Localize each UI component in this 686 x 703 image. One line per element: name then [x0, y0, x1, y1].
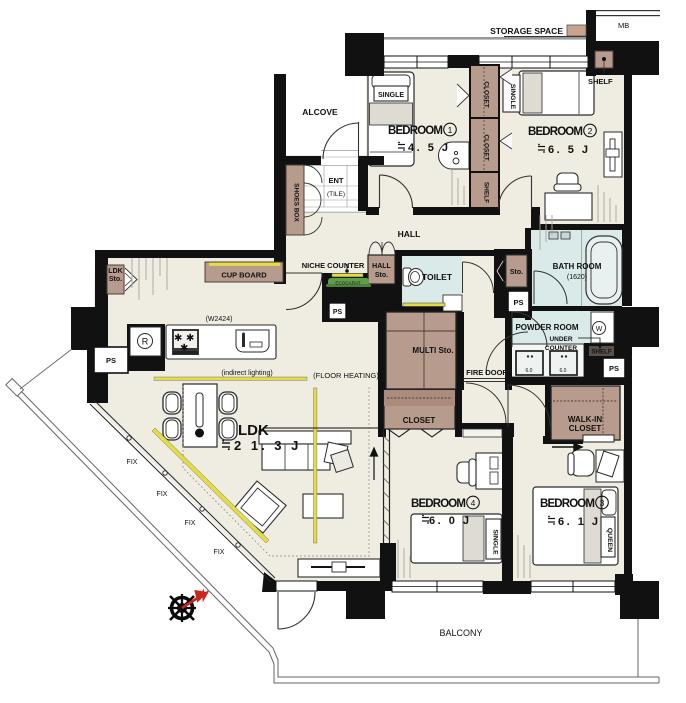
svg-text:SHOES BOX: SHOES BOX	[293, 183, 300, 222]
svg-text:CLOSET: CLOSET	[483, 134, 490, 160]
svg-text:BATH ROOM: BATH ROOM	[553, 262, 602, 271]
svg-text:(TILE): (TILE)	[327, 191, 345, 198]
svg-text:CLOSET: CLOSET	[403, 416, 436, 425]
svg-text:MULTI Sto.: MULTI Sto.	[412, 346, 453, 355]
svg-text:6.0: 6.0	[526, 368, 533, 374]
svg-text:CLOSET: CLOSET	[483, 81, 490, 107]
svg-text:FIX: FIX	[127, 459, 138, 466]
svg-text:POWDER ROOM: POWDER ROOM	[515, 323, 578, 332]
svg-text:FIX: FIX	[157, 491, 168, 498]
svg-text:R: R	[142, 337, 149, 347]
svg-text:Sto.: Sto.	[109, 276, 122, 283]
svg-text:MB: MB	[618, 21, 629, 30]
svg-text:SHELF: SHELF	[591, 349, 612, 356]
svg-text:SINGLE: SINGLE	[509, 84, 516, 110]
svg-text:HALL: HALL	[398, 229, 421, 239]
svg-text:(indirect lighting): (indirect lighting)	[221, 370, 272, 377]
svg-text:(W2424): (W2424)	[206, 316, 233, 323]
svg-text:W: W	[596, 326, 603, 333]
svg-text:6. 5 J: 6. 5 J	[548, 144, 591, 156]
svg-text:NICHE COUNTER: NICHE COUNTER	[302, 261, 365, 270]
svg-text:HALL: HALL	[372, 263, 391, 270]
svg-text:FIX: FIX	[214, 549, 225, 556]
svg-text:ECOCARAT: ECOCARAT	[335, 281, 360, 286]
svg-text:FIRE DOOR: FIRE DOOR	[466, 368, 508, 377]
svg-text:SHELF: SHELF	[588, 77, 613, 86]
svg-text:PS: PS	[609, 364, 619, 373]
svg-text:BEDROOM: BEDROOM	[540, 498, 595, 510]
svg-text:CUP BOARD: CUP BOARD	[221, 271, 267, 280]
svg-text:4: 4	[471, 498, 476, 508]
svg-text:COUNTER: COUNTER	[545, 345, 577, 352]
svg-text:BEDROOM: BEDROOM	[411, 498, 466, 510]
svg-text:6.0: 6.0	[560, 368, 567, 374]
svg-text:PS: PS	[106, 356, 116, 365]
svg-text:(1620): (1620)	[567, 274, 587, 281]
svg-text:6. 1 J: 6. 1 J	[558, 516, 601, 528]
svg-text:BEDROOM: BEDROOM	[388, 125, 443, 137]
svg-text:WALK-IN: WALK-IN	[568, 415, 602, 424]
svg-text:PS: PS	[333, 309, 343, 316]
svg-text:ALCOVE: ALCOVE	[302, 107, 338, 117]
svg-text:LDK: LDK	[108, 268, 122, 275]
svg-text:(FLOOR HEATING): (FLOOR HEATING)	[313, 371, 379, 380]
svg-text:STORAGE SPACE: STORAGE SPACE	[490, 26, 563, 36]
svg-text:FIX: FIX	[185, 520, 196, 527]
svg-text:6. 0 J: 6. 0 J	[429, 515, 472, 527]
svg-text:CLOSET: CLOSET	[569, 424, 602, 433]
svg-text:3: 3	[600, 498, 605, 508]
svg-text:1: 1	[448, 125, 453, 135]
svg-text:QUEEN: QUEEN	[606, 528, 613, 552]
svg-text:UNDER: UNDER	[549, 336, 572, 343]
svg-text:4. 5 J: 4. 5 J	[408, 142, 451, 154]
svg-text:2 1. 3 J: 2 1. 3 J	[234, 438, 301, 453]
svg-text:LDK: LDK	[238, 422, 269, 439]
svg-text:BALCONY: BALCONY	[439, 628, 482, 638]
svg-text:PS: PS	[513, 298, 523, 307]
svg-text:BEDROOM: BEDROOM	[528, 126, 583, 138]
svg-text:2: 2	[588, 126, 593, 136]
svg-text:Sto.: Sto.	[375, 272, 388, 279]
svg-text:SINGLE: SINGLE	[378, 92, 404, 99]
svg-text:SINGLE: SINGLE	[492, 529, 499, 555]
svg-text:ENT: ENT	[329, 176, 344, 185]
svg-text:SHELF: SHELF	[483, 182, 490, 203]
svg-text:Sto.: Sto.	[510, 269, 523, 276]
svg-text:TOILET: TOILET	[422, 272, 453, 282]
